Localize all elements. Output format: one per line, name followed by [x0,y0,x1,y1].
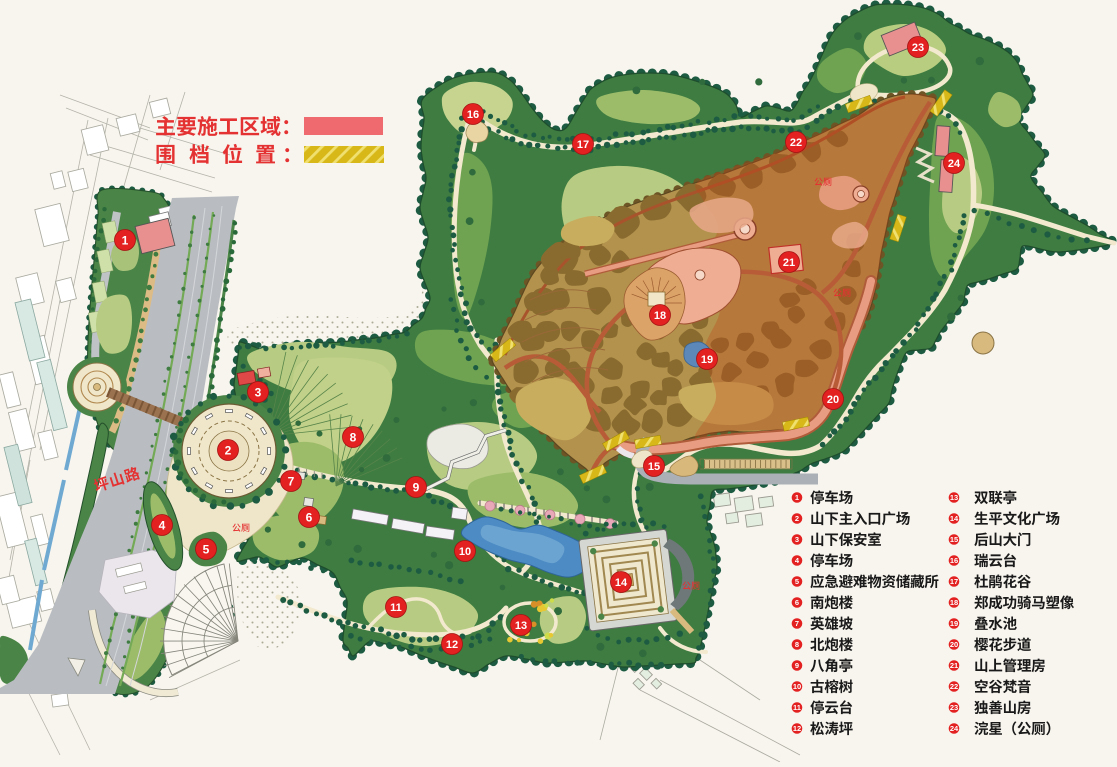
svg-text:22: 22 [950,682,958,691]
svg-text:19: 19 [950,619,958,628]
svg-text:14: 14 [950,514,959,523]
svg-text:1: 1 [122,233,129,247]
svg-text:11: 11 [793,703,801,712]
svg-text:4: 4 [159,518,166,532]
svg-text:8: 8 [795,640,799,649]
svg-text:17: 17 [950,577,958,586]
svg-text:5: 5 [203,542,210,556]
svg-text:11: 11 [390,602,402,614]
svg-text:23: 23 [950,703,958,712]
svg-text:21: 21 [950,661,958,670]
svg-text:3: 3 [795,535,799,544]
svg-text:15: 15 [648,461,660,473]
svg-text:10: 10 [793,682,801,691]
svg-text:9: 9 [413,480,420,494]
svg-text:10: 10 [459,546,471,558]
svg-text:17: 17 [577,139,589,151]
svg-text:13: 13 [515,620,527,632]
svg-text:9: 9 [795,661,799,670]
svg-text:1: 1 [795,493,799,502]
svg-text:24: 24 [948,158,961,170]
svg-text:18: 18 [654,310,666,322]
svg-text:16: 16 [950,556,958,565]
svg-text:23: 23 [912,42,924,54]
svg-text:6: 6 [795,598,799,607]
svg-text:6: 6 [306,510,313,524]
svg-text:24: 24 [950,724,959,733]
svg-text:12: 12 [446,639,458,651]
svg-text:12: 12 [793,724,801,733]
svg-text:20: 20 [827,394,839,406]
svg-text:22: 22 [790,137,802,149]
svg-text:7: 7 [795,619,799,628]
svg-text:2: 2 [795,514,799,523]
svg-text:19: 19 [701,354,713,366]
svg-text:2: 2 [225,443,232,457]
svg-text:21: 21 [783,257,795,269]
svg-text:5: 5 [795,577,799,586]
svg-text:14: 14 [615,577,628,589]
svg-text:16: 16 [467,109,479,121]
svg-text:20: 20 [950,640,958,649]
svg-text:3: 3 [255,385,262,399]
svg-text:8: 8 [350,430,357,444]
svg-text:18: 18 [950,598,958,607]
svg-text:7: 7 [288,474,295,488]
svg-text:15: 15 [950,535,958,544]
svg-text:13: 13 [950,493,958,502]
